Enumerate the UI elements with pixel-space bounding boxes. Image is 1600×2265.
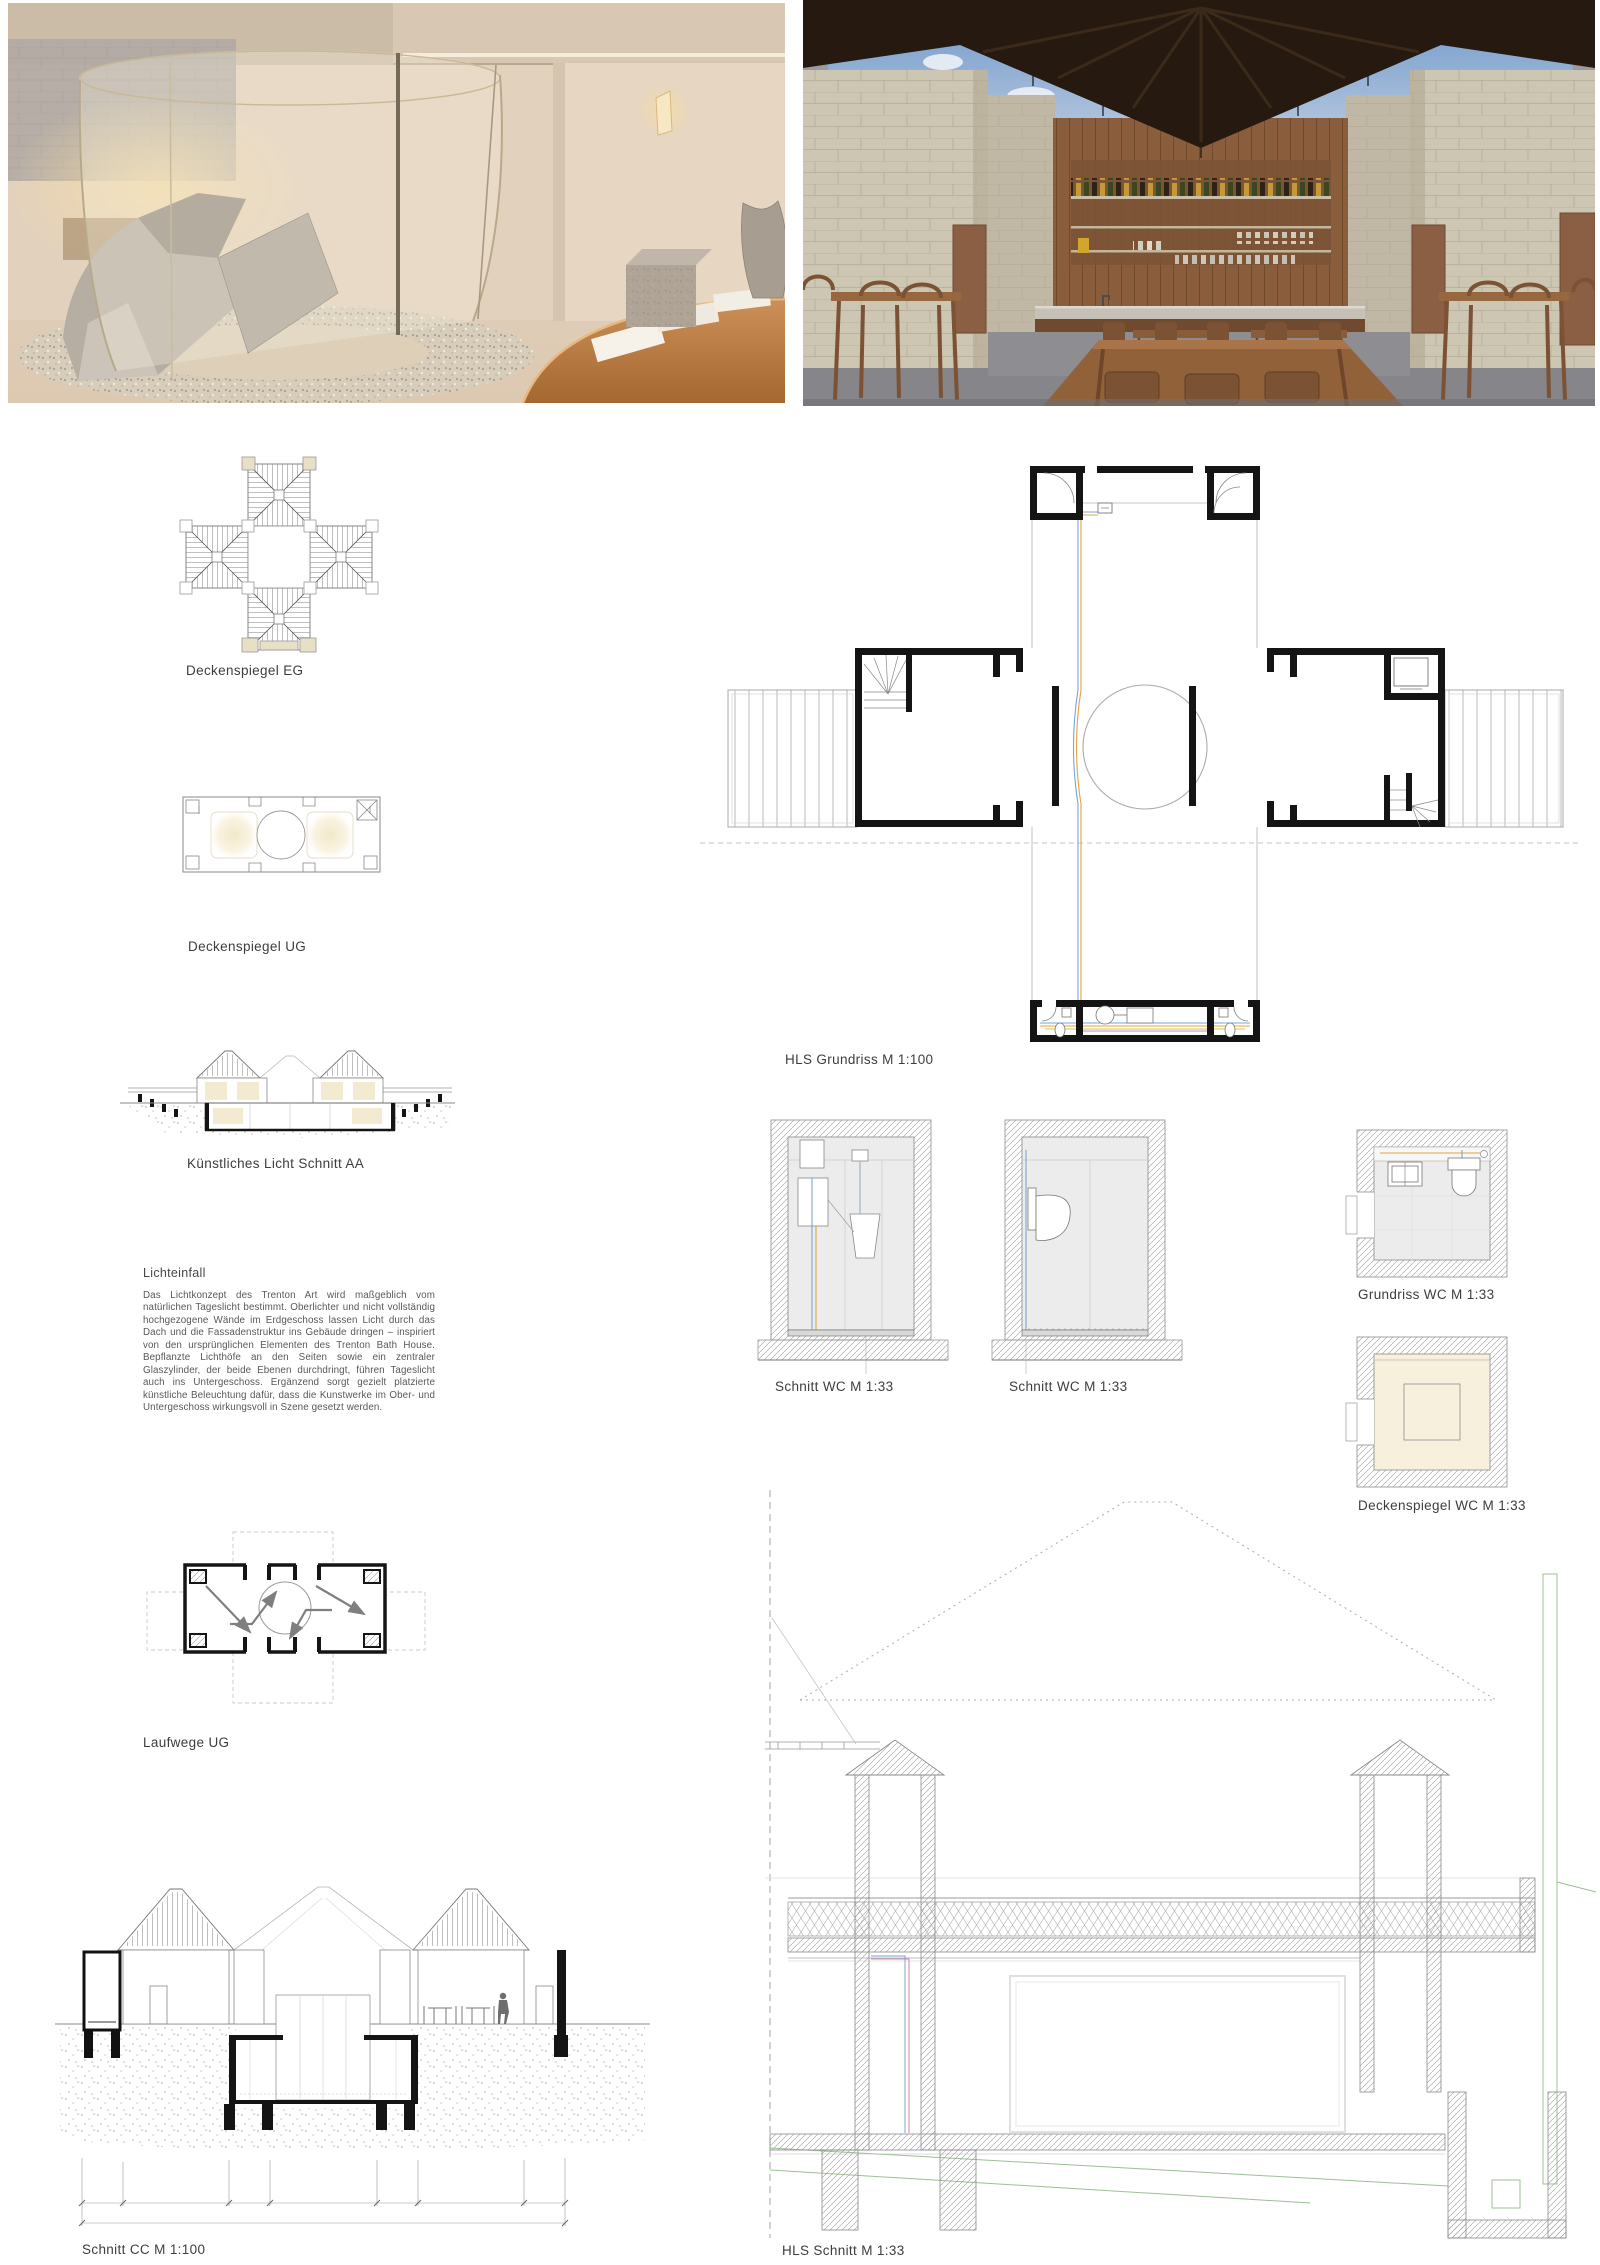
presentation-board: Deckenspiegel EG Deckenspiegel UG Künstl… <box>0 0 1600 2265</box>
sump-pit <box>1448 2092 1566 2238</box>
drawing-schnitt-wc-2 <box>992 1120 1182 1374</box>
render-courtyard-bar <box>803 0 1595 406</box>
drawing-schnitt-cc <box>55 1887 650 2226</box>
lichteinfall-body: Das Lichtkonzept des Trenton Art wird ma… <box>143 1290 435 1414</box>
drawing-kuenstliches-licht-schnitt-aa <box>120 1051 455 1138</box>
label-laufwege-ug: Laufwege UG <box>143 1735 229 1750</box>
drawing-hls-schnitt <box>765 1490 1596 2238</box>
roof-dashed <box>800 1502 1496 1700</box>
label-deckenspiegel-ug: Deckenspiegel UG <box>188 939 306 954</box>
floor-slab <box>788 1878 1535 1961</box>
dimension-chain <box>79 2158 568 2226</box>
label-hls-grundriss: HLS Grundriss M 1:100 <box>785 1052 933 1067</box>
decks <box>728 690 1563 827</box>
stair-left <box>864 655 908 708</box>
label-deckenspiegel-wc: Deckenspiegel WC M 1:33 <box>1358 1498 1526 1513</box>
label-schnitt-wc-1: Schnitt WC M 1:33 <box>775 1379 894 1394</box>
drawing-deckenspiegel-ug <box>183 797 380 872</box>
label-schnitt-wc-2: Schnitt WC M 1:33 <box>1009 1379 1128 1394</box>
foreground-table <box>1043 340 1403 406</box>
label-deckenspiegel-eg: Deckenspiegel EG <box>186 663 303 678</box>
drawing-laufwege-ug <box>147 1532 425 1703</box>
lichteinfall-heading: Lichteinfall <box>143 1266 206 1280</box>
label-grundriss-wc: Grundriss WC M 1:33 <box>1358 1287 1494 1302</box>
render-interior-gallery <box>8 3 785 403</box>
label-hls-schnitt: HLS Schnitt M 1:33 <box>782 2243 905 2258</box>
drawing-grundriss-wc <box>1346 1130 1507 1277</box>
drawing-schnitt-wc-1 <box>758 1120 948 1374</box>
drawing-hls-grundriss <box>700 466 1580 1042</box>
drawing-deckenspiegel-eg <box>180 457 378 652</box>
wall-lamp <box>637 83 693 139</box>
label-kuenstliches-licht: Künstliches Licht Schnitt AA <box>187 1156 364 1171</box>
elevator <box>1384 648 1445 700</box>
drawing-deckenspiegel-wc <box>1346 1337 1507 1487</box>
label-schnitt-cc: Schnitt CC M 1:100 <box>82 2242 205 2257</box>
glass-cylinder-section <box>276 1995 370 2100</box>
stair-right <box>1384 773 1438 827</box>
